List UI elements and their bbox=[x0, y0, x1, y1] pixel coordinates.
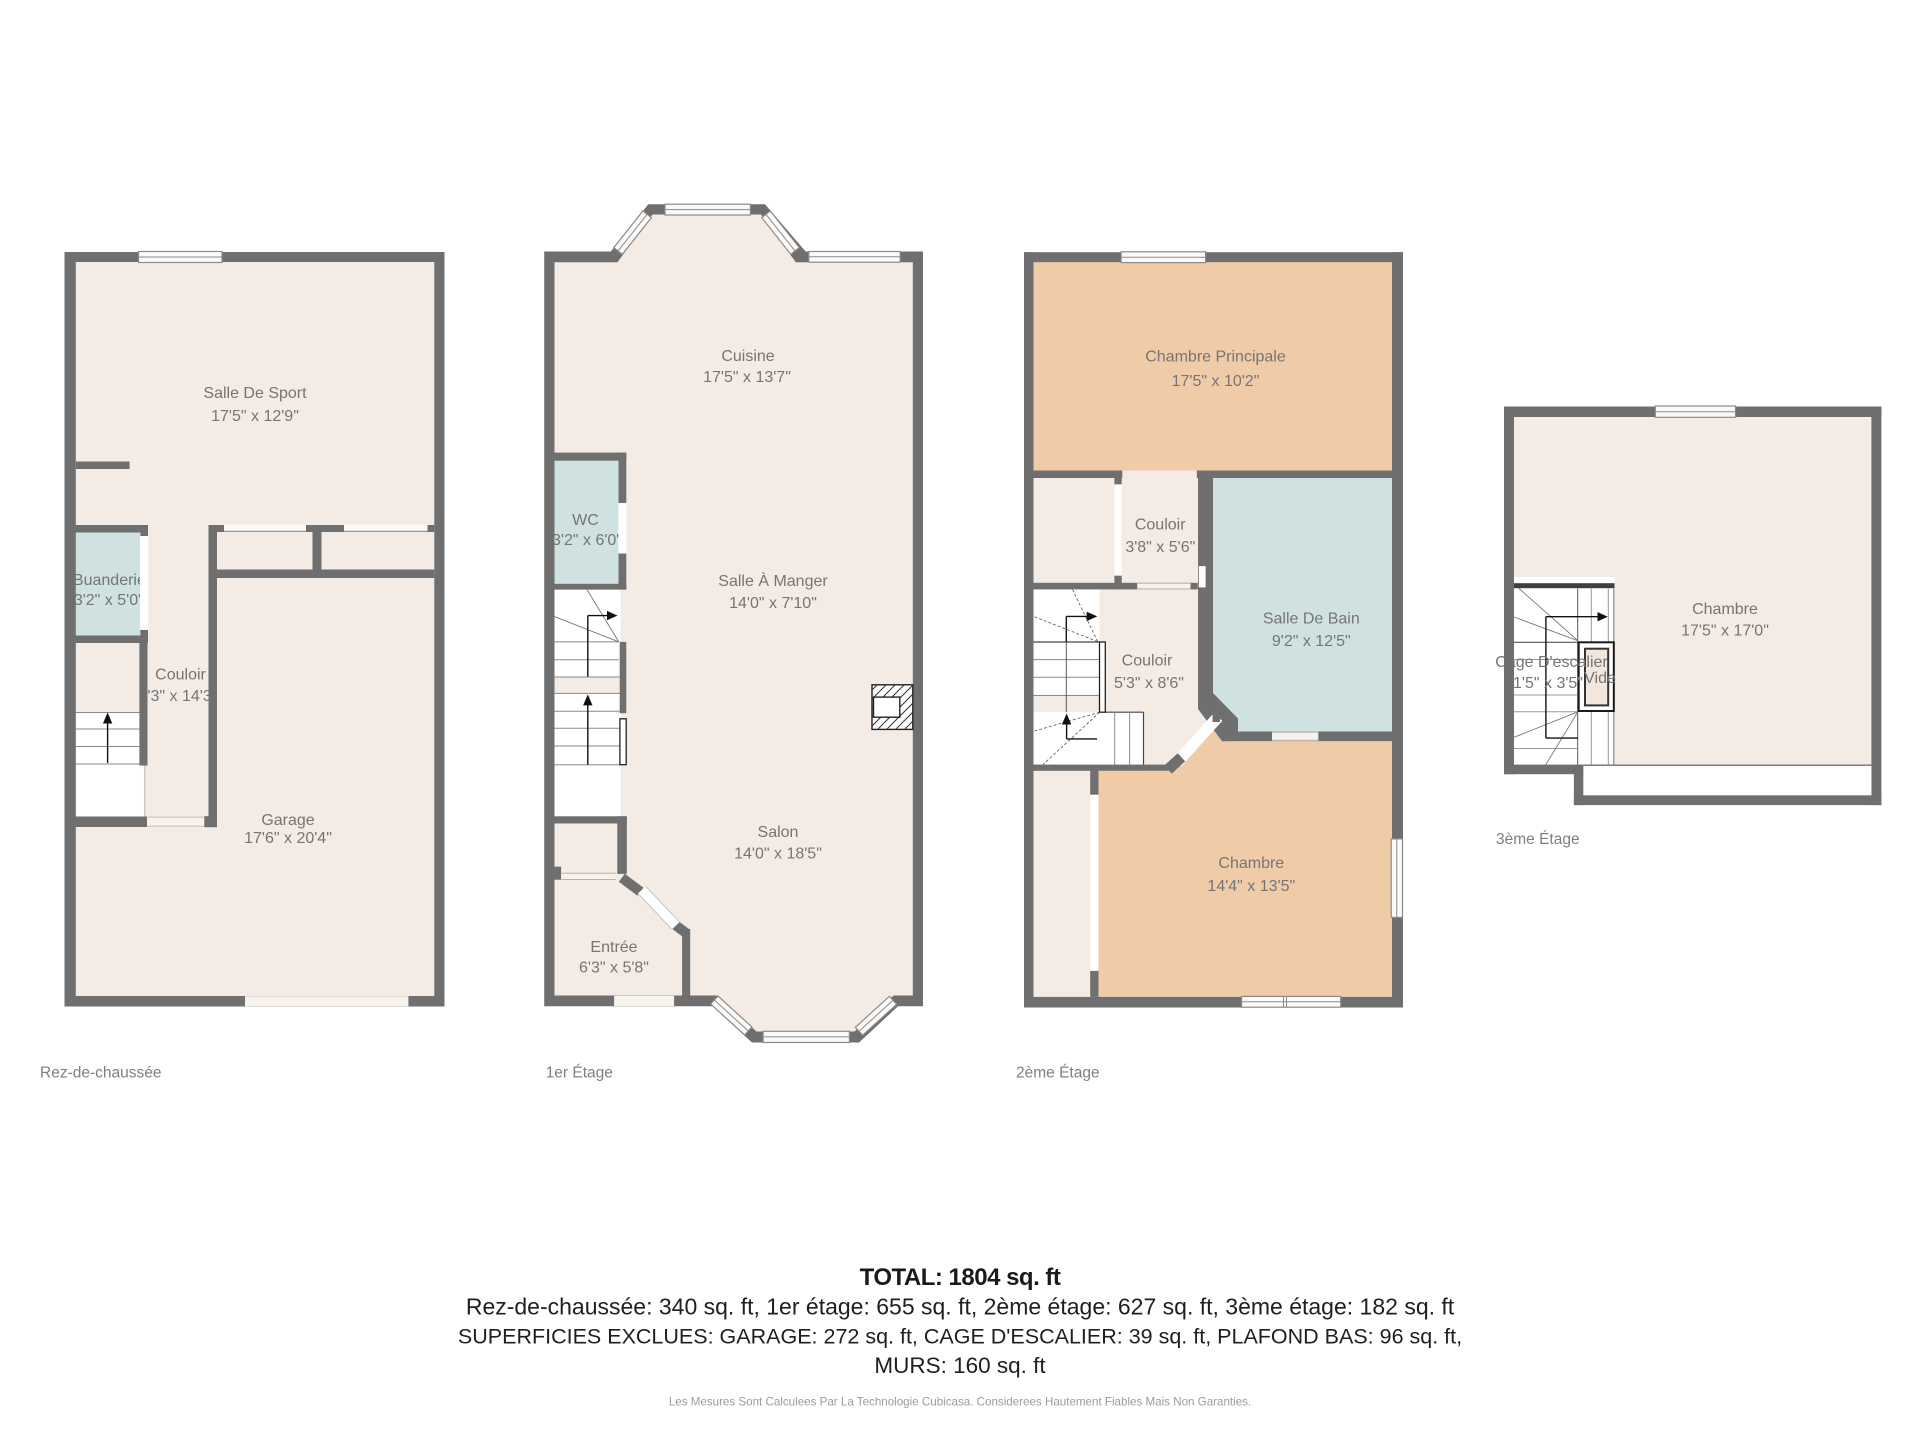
svg-text:Entrée: Entrée bbox=[590, 939, 637, 956]
svg-text:3ème Étage: 3ème Étage bbox=[1496, 831, 1580, 848]
svg-text:3'2" x 5'0": 3'2" x 5'0" bbox=[74, 592, 144, 609]
svg-text:17'5" x 12'9": 17'5" x 12'9" bbox=[211, 408, 299, 425]
svg-text:Salle De Sport: Salle De Sport bbox=[203, 385, 307, 402]
svg-text:Les Mesures Sont Calculees Par: Les Mesures Sont Calculees Par La Techno… bbox=[669, 1396, 1251, 1409]
svg-text:Vide: Vide bbox=[1584, 670, 1616, 687]
svg-text:9'2" x 12'5": 9'2" x 12'5" bbox=[1272, 633, 1351, 650]
svg-text:Couloir: Couloir bbox=[155, 667, 206, 684]
svg-text:5'3" x 8'6": 5'3" x 8'6" bbox=[1114, 675, 1184, 692]
svg-text:3'8" x 5'6": 3'8" x 5'6" bbox=[1125, 539, 1195, 556]
svg-text:Salle À Manger: Salle À Manger bbox=[718, 571, 828, 590]
svg-text:Chambre: Chambre bbox=[1218, 855, 1284, 872]
svg-text:17'6" x 20'4": 17'6" x 20'4" bbox=[244, 830, 332, 847]
svg-text:3'2" x 6'0": 3'2" x 6'0" bbox=[552, 532, 622, 549]
svg-text:6'3" x 5'8": 6'3" x 5'8" bbox=[579, 960, 649, 977]
svg-text:1er Étage: 1er Étage bbox=[546, 1065, 613, 1082]
svg-text:WC: WC bbox=[572, 512, 599, 529]
svg-text:14'0" x 7'10": 14'0" x 7'10" bbox=[729, 595, 817, 612]
svg-text:MURS: 160 sq. ft: MURS: 160 sq. ft bbox=[874, 1353, 1046, 1378]
svg-text:Rez-de-chaussée: Rez-de-chaussée bbox=[40, 1065, 161, 1082]
svg-text:Chambre Principale: Chambre Principale bbox=[1145, 349, 1286, 366]
svg-text:Couloir: Couloir bbox=[1122, 653, 1173, 670]
svg-text:Rez-de-chaussée: 340 sq. ft, 1: Rez-de-chaussée: 340 sq. ft, 1er étage: … bbox=[466, 1294, 1455, 1320]
svg-text:Salon: Salon bbox=[758, 824, 799, 841]
svg-text:14'4" x 13'5": 14'4" x 13'5" bbox=[1207, 878, 1295, 895]
svg-text:Buanderie: Buanderie bbox=[73, 572, 146, 589]
svg-text:17'5" x 17'0": 17'5" x 17'0" bbox=[1681, 623, 1769, 640]
svg-text:1'5" x 3'5": 1'5" x 3'5" bbox=[1513, 675, 1583, 692]
svg-text:Couloir: Couloir bbox=[1135, 516, 1186, 533]
svg-text:SUPERFICIES EXCLUES: GARAGE: 2: SUPERFICIES EXCLUES: GARAGE: 272 sq. ft,… bbox=[458, 1325, 1462, 1349]
svg-text:17'5" x 10'2": 17'5" x 10'2" bbox=[1172, 373, 1260, 390]
svg-text:Chambre: Chambre bbox=[1692, 601, 1758, 618]
svg-text:Garage: Garage bbox=[261, 812, 314, 829]
svg-text:17'5" x 13'7": 17'5" x 13'7" bbox=[703, 369, 791, 386]
svg-text:5'3" x 14'3": 5'3" x 14'3" bbox=[139, 688, 218, 705]
svg-text:2ème Étage: 2ème Étage bbox=[1016, 1065, 1100, 1082]
svg-text:Salle De Bain: Salle De Bain bbox=[1263, 610, 1360, 627]
svg-text:14'0" x 18'5": 14'0" x 18'5" bbox=[734, 846, 822, 863]
svg-text:TOTAL: 1804 sq. ft: TOTAL: 1804 sq. ft bbox=[860, 1264, 1061, 1291]
svg-text:Cuisine: Cuisine bbox=[721, 348, 774, 365]
